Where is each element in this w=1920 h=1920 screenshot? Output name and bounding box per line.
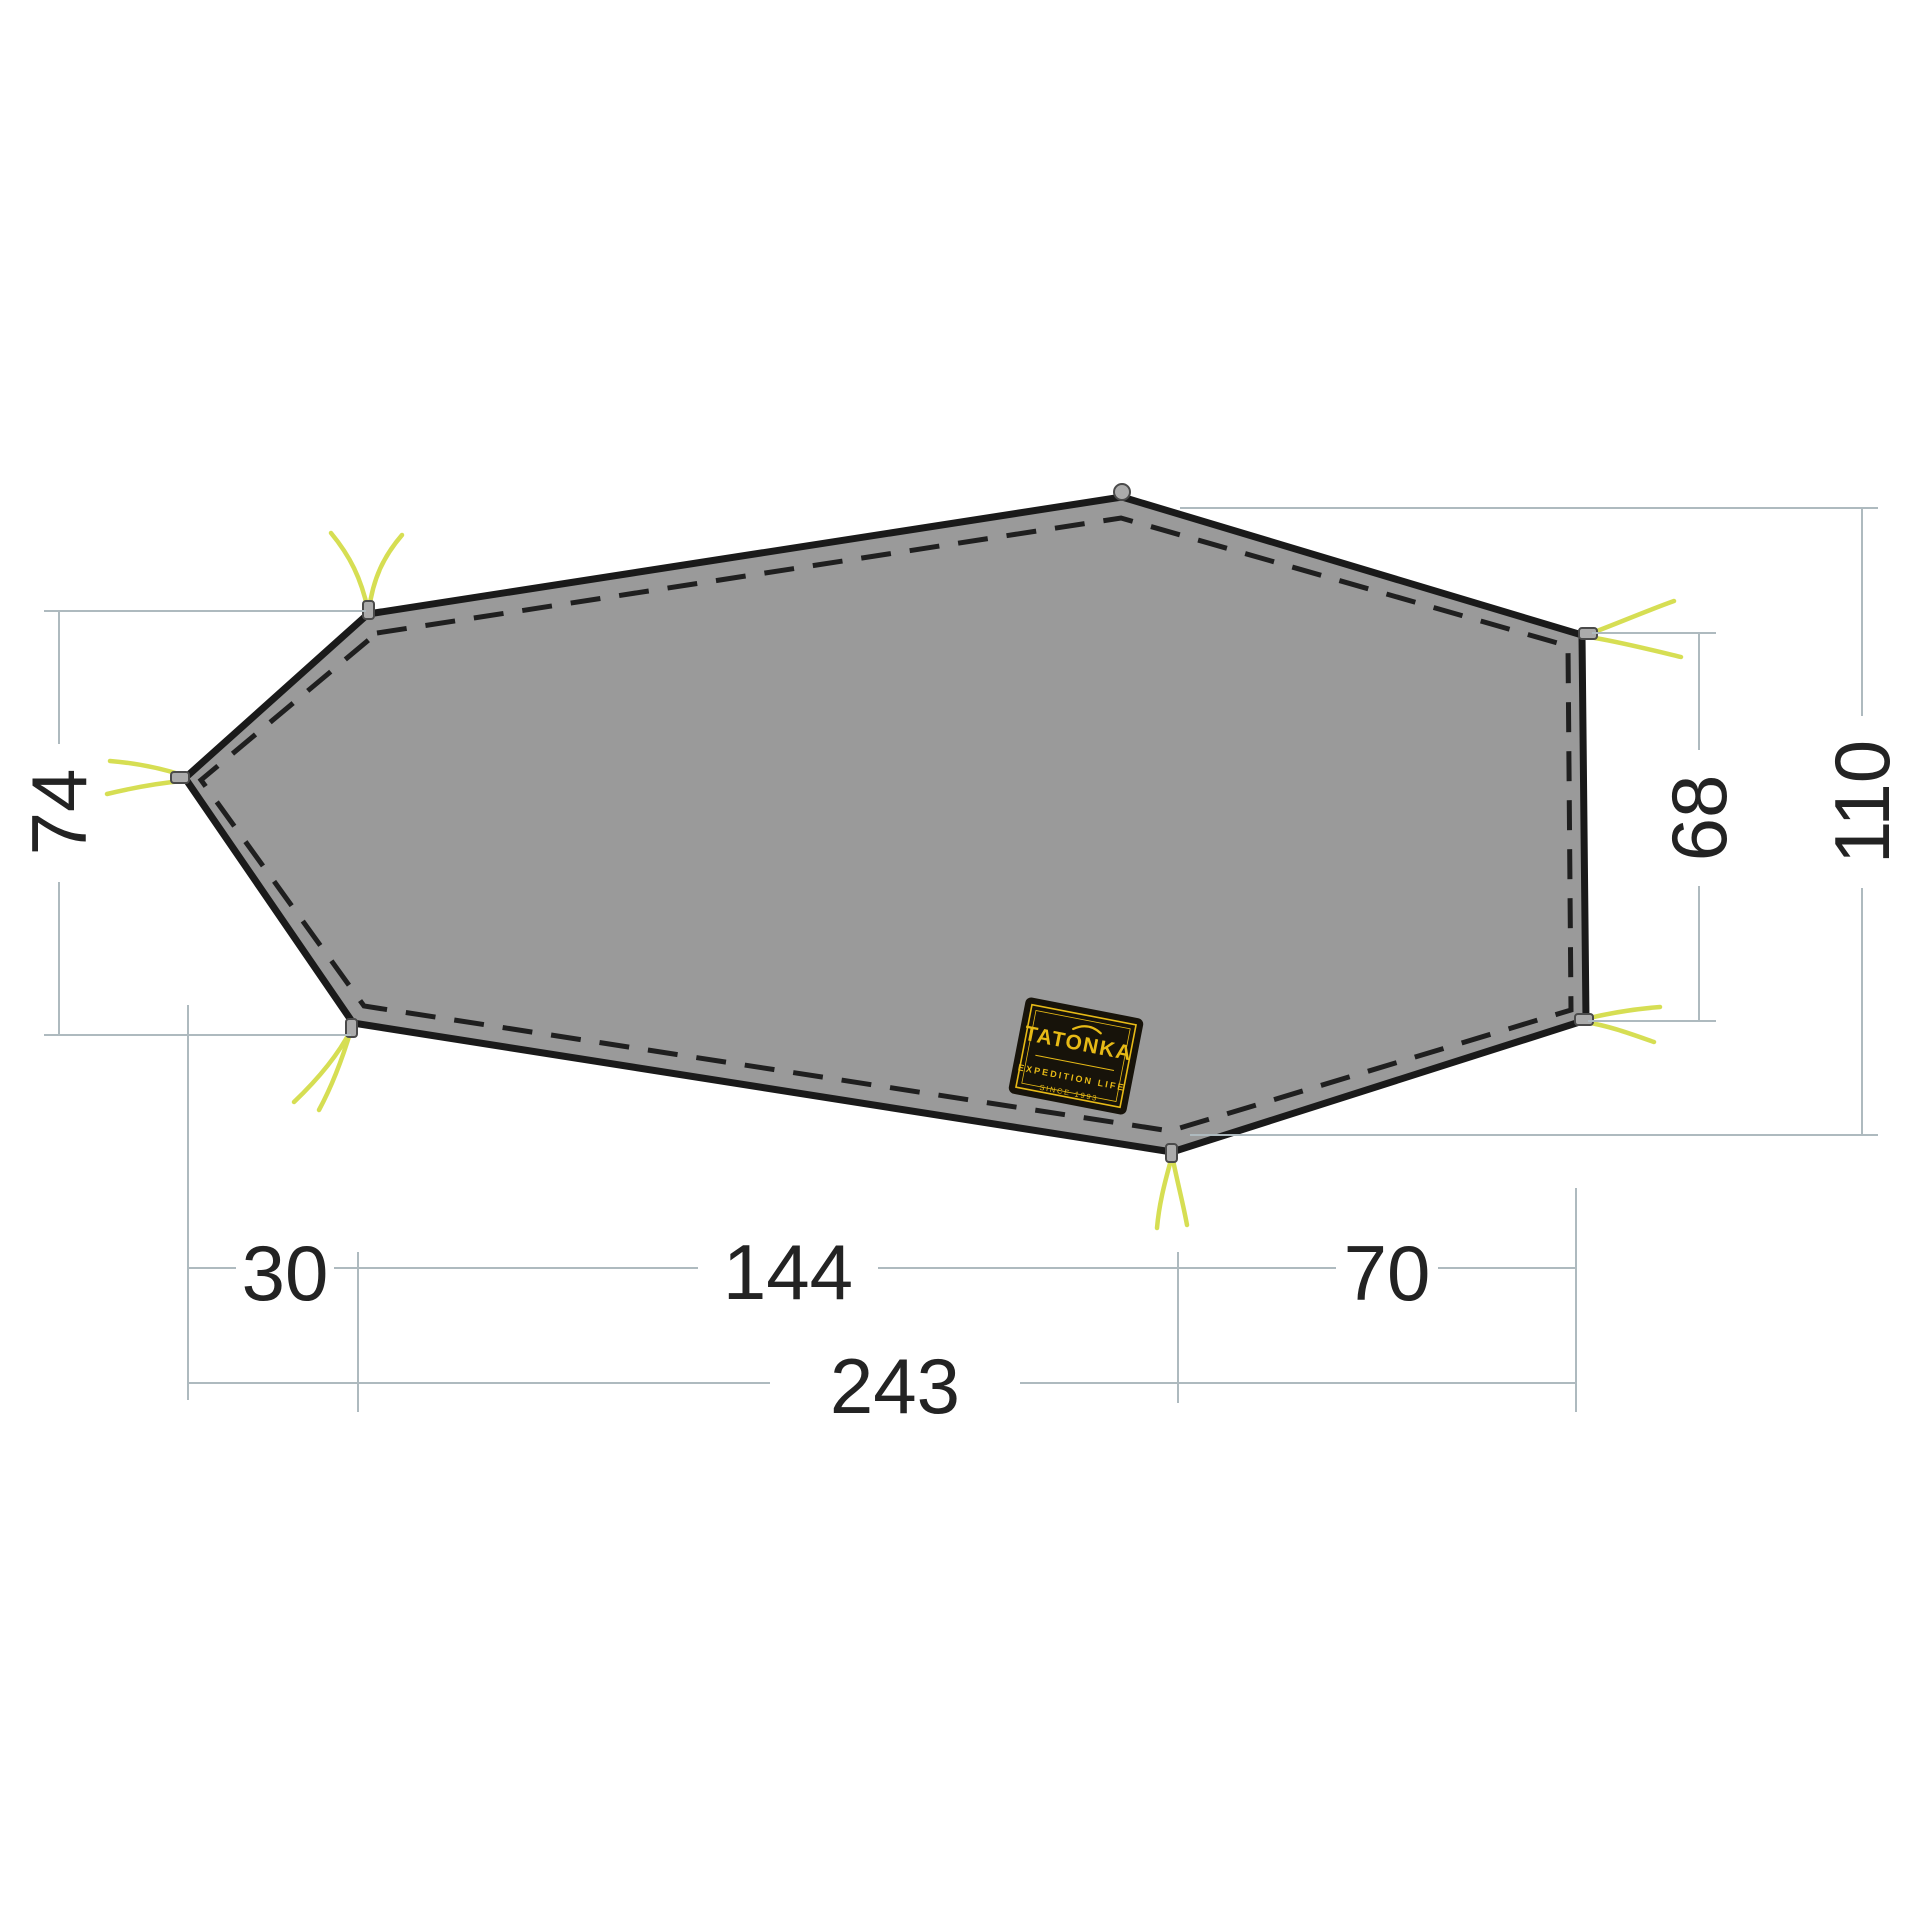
dimension-label-144: 144: [723, 1228, 853, 1316]
dimension-label-74: 74: [15, 769, 103, 856]
guyline-bottom-left: [294, 1030, 351, 1110]
guyline-top-right: [1589, 601, 1681, 657]
dimension-label-30: 30: [242, 1229, 329, 1317]
footprint-fabric: [185, 497, 1586, 1152]
diagram-canvas: 74 68 110: [0, 0, 1920, 1920]
guyline-bottom-apex: [1157, 1160, 1187, 1228]
tent-footprint-dimension-diagram: 74 68 110: [0, 0, 1920, 1920]
dimension-label-70: 70: [1344, 1229, 1431, 1317]
grommet-left-tip: [171, 772, 189, 783]
guyline-top-left: [331, 533, 402, 610]
grommet-top-apex: [1114, 484, 1130, 500]
grommet-bottom-apex: [1166, 1144, 1177, 1162]
grommet-bottom-right: [1575, 1014, 1593, 1025]
dimension-right-edge-height: 68: [1588, 633, 1743, 1021]
footprint-shape: [185, 497, 1586, 1152]
dimension-label-110: 110: [1818, 740, 1906, 864]
dimension-label-68: 68: [1655, 775, 1743, 862]
dimension-label-243: 243: [830, 1342, 960, 1430]
guyline-bottom-right: [1585, 1007, 1660, 1042]
